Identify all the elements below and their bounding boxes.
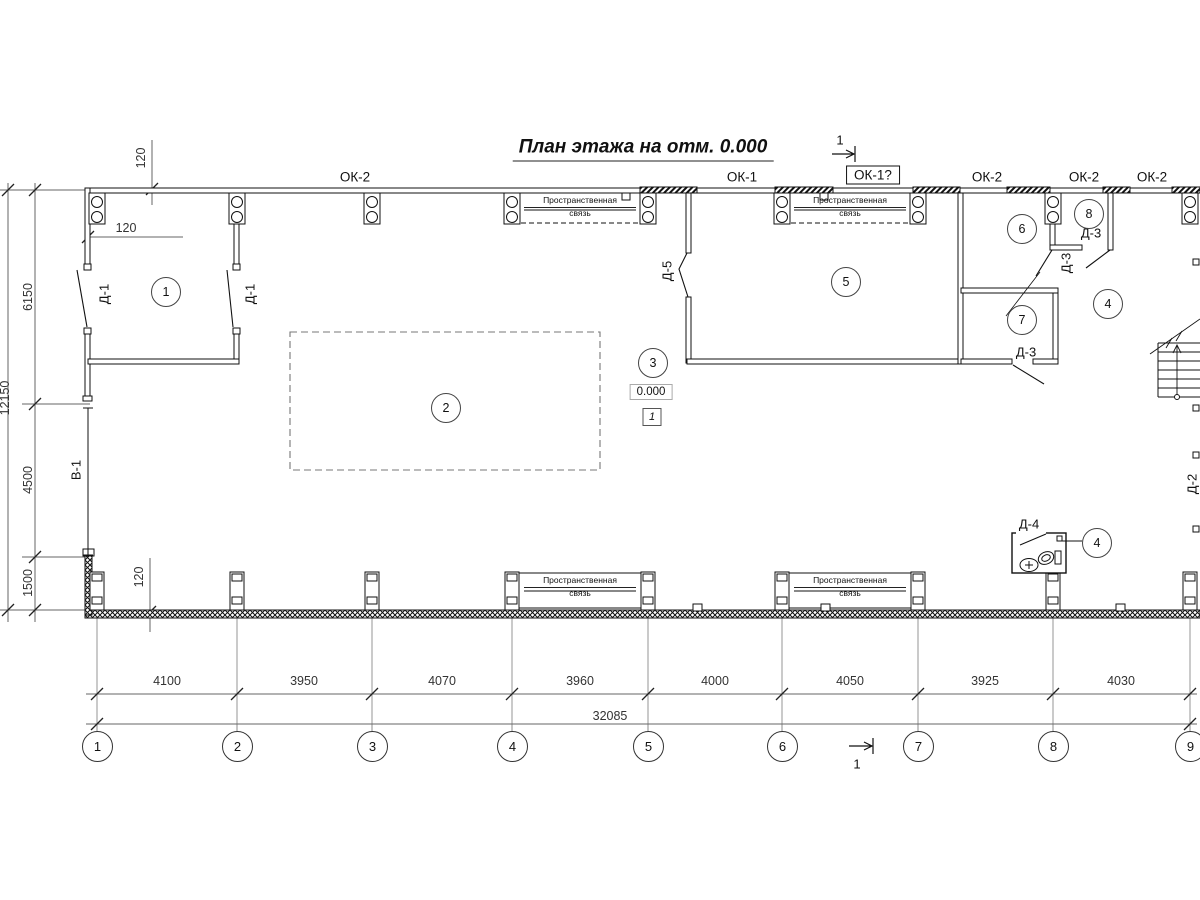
brace-label-line2: связь xyxy=(839,208,861,219)
toilet-room xyxy=(1012,531,1082,573)
window-label-ok1-boxed: ОК-1? xyxy=(846,166,900,185)
window-opening xyxy=(775,187,833,193)
zone-mark: 1 xyxy=(643,408,662,426)
dim-bottom-6: 3925 xyxy=(971,674,999,688)
dim-bottom-1: 3950 xyxy=(290,674,318,688)
brace-label-line1: Пространственная xyxy=(794,195,906,208)
grid-bubble-6: 6 xyxy=(767,731,798,762)
dim-offset-bottom: 120 xyxy=(132,567,146,588)
brace-label-line2: связь xyxy=(569,588,591,599)
dim-bottom-2: 4070 xyxy=(428,674,456,688)
window-label-ok1: ОК-1 xyxy=(727,170,757,185)
dim-left-0: 6150 xyxy=(21,283,35,311)
floor-plan-sheet: План этажа на отм. 0.000 1 1 ОК-2 ОК-1 О… xyxy=(0,0,1200,900)
window-opening xyxy=(1103,187,1130,193)
door-label-d1-left: Д-1 xyxy=(97,284,112,304)
room-number-3: 3 xyxy=(638,348,668,378)
dim-bottom-3: 3960 xyxy=(566,674,594,688)
window-label-ok2-a: ОК-2 xyxy=(340,170,370,185)
grid-bubble-3: 3 xyxy=(357,731,388,762)
dim-bottom-total: 32085 xyxy=(593,709,628,723)
dim-offset-left-wall: 120 xyxy=(116,221,137,235)
dim-left-1: 4500 xyxy=(21,466,35,494)
wc-tank xyxy=(1055,551,1061,564)
window-opening xyxy=(1007,187,1050,193)
spatial-brace-bottom-2: Пространственная связь xyxy=(794,575,906,599)
dim-left-total: 12150 xyxy=(0,381,12,416)
window-opening xyxy=(913,187,960,193)
gate-label-v1: В-1 xyxy=(69,460,84,480)
dim-bottom-7: 4030 xyxy=(1107,674,1135,688)
columns-bottom xyxy=(90,572,1197,610)
grid-bubble-9: 9 xyxy=(1175,731,1200,762)
room-number-6: 6 xyxy=(1007,214,1037,244)
drawing-title: План этажа на отм. 0.000 xyxy=(513,137,774,162)
section-mark-bottom-label: 1 xyxy=(853,757,860,772)
dim-bottom-4: 4000 xyxy=(701,674,729,688)
room-number-5: 5 xyxy=(831,267,861,297)
grid-bubble-1: 1 xyxy=(82,731,113,762)
door-label-d2: Д-2 xyxy=(1185,474,1200,494)
bottom-wall xyxy=(85,610,1200,618)
dim-offset-top: 120 xyxy=(134,148,148,169)
elevation-mark: 0.000 xyxy=(630,384,673,400)
room-number-2: 2 xyxy=(431,393,461,423)
brace-label-line1: Пространственная xyxy=(794,575,906,588)
grid-bubble-4: 4 xyxy=(497,731,528,762)
dim-bottom-0: 4100 xyxy=(153,674,181,688)
section-mark-top-label: 1 xyxy=(836,133,843,148)
dimension-ticks xyxy=(2,183,1196,730)
room-number-4b: 4 xyxy=(1082,528,1112,558)
brace-label-line2: связь xyxy=(839,588,861,599)
room-number-1: 1 xyxy=(151,277,181,307)
window-label-ok2-c: ОК-2 xyxy=(1069,170,1099,185)
spatial-brace-top-1: Пространственная связь xyxy=(524,195,636,219)
grid-bubble-8: 8 xyxy=(1038,731,1069,762)
room-number-8: 8 xyxy=(1074,199,1104,229)
dim-bottom-5: 4050 xyxy=(836,674,864,688)
stairs xyxy=(1150,319,1200,400)
door-label-d3-corridor: Д-3 xyxy=(1059,253,1074,273)
section-arrow-bottom xyxy=(849,738,873,754)
door-label-d4: Д-4 xyxy=(1019,517,1039,532)
door-label-d5: Д-5 xyxy=(660,261,675,281)
room-number-7: 7 xyxy=(1007,305,1037,335)
window-label-ok2-b: ОК-2 xyxy=(972,170,1002,185)
room-number-4a: 4 xyxy=(1093,289,1123,319)
brace-boxes xyxy=(512,193,918,608)
spatial-brace-bottom-1: Пространственная связь xyxy=(524,575,636,599)
window-label-ok2-d: ОК-2 xyxy=(1137,170,1167,185)
floor-plan-linework xyxy=(0,0,1200,900)
grid-bubble-2: 2 xyxy=(222,731,253,762)
window-opening xyxy=(640,187,697,193)
dim-left-2: 1500 xyxy=(21,569,35,597)
section-arrow-top xyxy=(832,146,855,162)
grid-lines xyxy=(97,618,1190,731)
brace-label-line2: связь xyxy=(569,208,591,219)
grid-bubble-5: 5 xyxy=(633,731,664,762)
brace-label-line1: Пространственная xyxy=(524,575,636,588)
spatial-brace-top-2: Пространственная связь xyxy=(794,195,906,219)
brace-label-line1: Пространственная xyxy=(524,195,636,208)
window-opening xyxy=(1172,187,1200,193)
door-label-d3-room7: Д-3 xyxy=(1016,345,1036,360)
gate-opening-v1 xyxy=(83,408,93,555)
door-label-d1-mid: Д-1 xyxy=(243,284,258,304)
grid-bubble-7: 7 xyxy=(903,731,934,762)
